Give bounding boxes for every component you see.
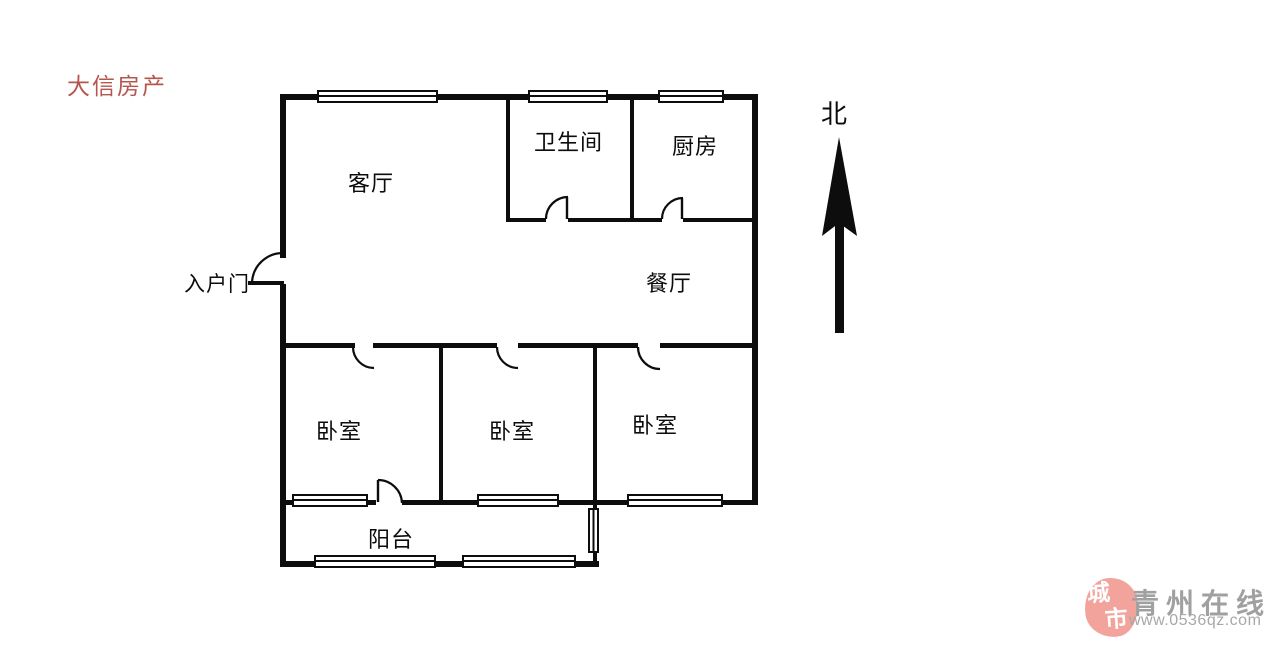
- bedroom1-door-arc: [353, 347, 374, 368]
- balcony-label: 阳台: [368, 528, 414, 552]
- seal-char-bottom: 市: [1104, 607, 1129, 632]
- kitchen-label: 厨房: [672, 135, 718, 159]
- bedroom3-door-arc: [638, 347, 660, 369]
- bedroom3-label: 卧室: [632, 414, 678, 438]
- north-label: 北: [821, 100, 848, 129]
- entrance-door-label: 入户门: [184, 273, 250, 296]
- living-room-label: 客厅: [348, 172, 394, 196]
- bedroom1-label: 卧室: [316, 420, 362, 444]
- bathroom-label: 卫生间: [534, 131, 603, 155]
- bedroom2-door-arc: [497, 347, 518, 368]
- floor-plan: 大信房产 客厅 卫生: [0, 0, 1280, 658]
- seal-char-top: 城: [1086, 581, 1111, 606]
- north-arrow-icon: [822, 137, 857, 333]
- site-url: www.0536qz.com: [1129, 612, 1261, 630]
- bathroom-door-arc: [546, 197, 568, 219]
- kitchen-door-arc: [662, 198, 683, 219]
- door-arcs-and-compass: [0, 0, 1280, 658]
- dining-room-label: 餐厅: [646, 272, 692, 296]
- balcony-door-arc: [378, 480, 402, 503]
- entrance-door-arc: [252, 253, 283, 282]
- bedroom2-label: 卧室: [489, 420, 535, 444]
